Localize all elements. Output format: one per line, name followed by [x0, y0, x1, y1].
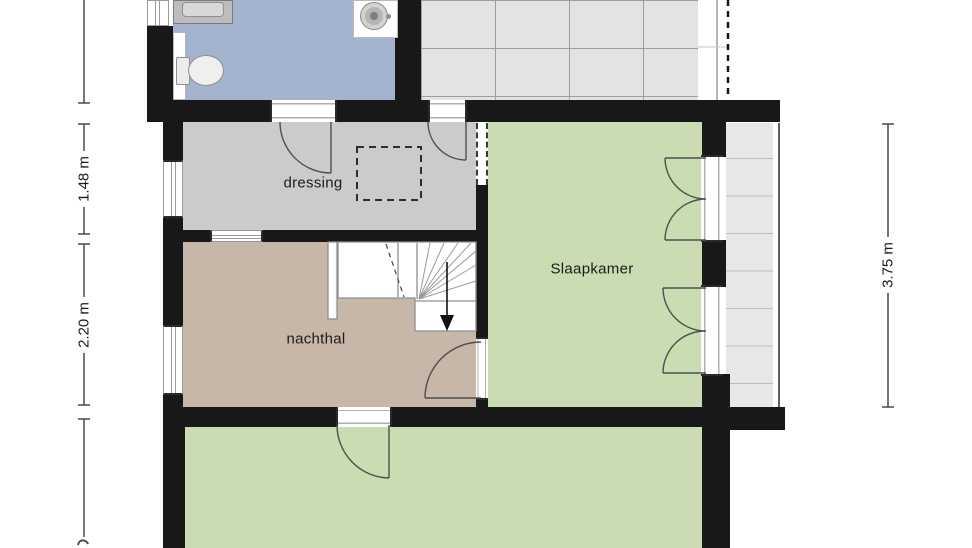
wall [263, 230, 476, 242]
wall [476, 400, 488, 427]
wall [163, 242, 183, 327]
window [163, 325, 183, 395]
shower-tray-icon [182, 2, 224, 17]
wall [702, 374, 730, 548]
wall-passage-opening [476, 123, 488, 185]
door-opening-bottom-room [336, 407, 392, 427]
french-door-opening-upper [701, 155, 723, 242]
room-label-dressing: dressing [283, 175, 342, 192]
balcony-tile-band [726, 123, 773, 407]
washbasin-drain [370, 12, 378, 20]
window [147, 0, 169, 26]
balcony-edge-line [778, 123, 780, 407]
floor-plan: dressing nachthal Slaapkamer 1.48 m 2.20… [0, 0, 972, 548]
window [210, 230, 263, 242]
french-door-opening-lower [701, 285, 723, 376]
door-opening-slaapkamer [476, 337, 488, 400]
washbasin-tap [386, 14, 391, 19]
room-label-nachthal: nachthal [286, 331, 345, 348]
nachthal-floor [183, 242, 476, 407]
wall [163, 427, 185, 548]
wall [147, 100, 270, 122]
room-label-slaapkamer: Slaapkamer [550, 261, 633, 278]
wall [702, 122, 726, 157]
dimension-label-right: 3.75 m [880, 237, 897, 293]
wall [163, 122, 183, 162]
wall [392, 407, 702, 427]
wall [163, 230, 210, 242]
wall [163, 407, 336, 427]
window [163, 160, 183, 218]
wall [476, 185, 488, 337]
wall [395, 0, 421, 122]
dimension-label-left-lower: 2.20 m [76, 297, 93, 353]
dimension-label-left-upper: 1.48 m [76, 151, 93, 207]
toilet-bowl-icon [188, 55, 224, 86]
terrace-tiled-floor [421, 0, 698, 100]
bottom-room-floor [185, 427, 702, 548]
door-opening-terrace [428, 100, 467, 122]
door-opening-bathroom [270, 100, 337, 122]
wall [467, 100, 780, 122]
wall [702, 240, 726, 287]
